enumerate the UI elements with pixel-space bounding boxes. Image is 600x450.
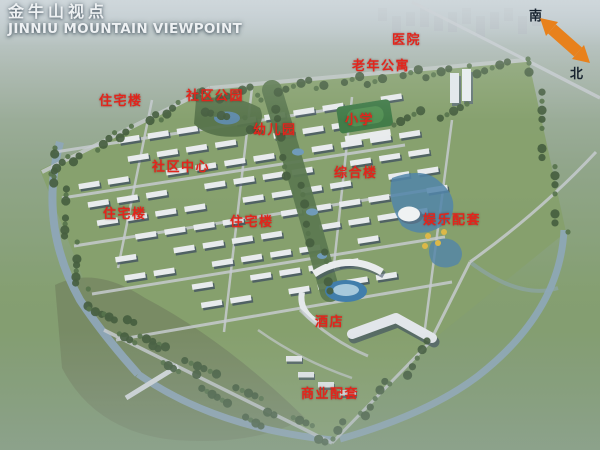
map-label: 综合楼 xyxy=(334,162,378,181)
map-label: 商业配套 xyxy=(301,383,359,402)
map-label: 酒店 xyxy=(315,311,344,330)
map-label: 社区中心 xyxy=(152,156,210,175)
map-label: 医院 xyxy=(392,29,421,48)
aerial-photo xyxy=(0,0,600,450)
compass-south-label: 南 xyxy=(529,8,542,24)
map-label: 幼儿园 xyxy=(253,119,297,138)
title-chinese: 金牛山视点 xyxy=(8,3,242,22)
compass-north-label: 北 xyxy=(570,67,583,82)
viewpoint-title: 金牛山视点 JINNIU MOUNTAIN VIEWPOINT xyxy=(8,3,242,38)
compass: 南 北 xyxy=(528,0,600,82)
map-label: 社区公园 xyxy=(186,85,244,104)
map-label: 老年公寓 xyxy=(352,55,410,74)
compass-arrow-icon: 南 北 xyxy=(528,0,600,82)
map-label: 小学 xyxy=(345,109,374,128)
map-label: 住宅楼 xyxy=(99,90,143,109)
map-label: 住宅楼 xyxy=(230,211,274,230)
map-label: 住宅楼 xyxy=(103,203,147,222)
title-english: JINNIU MOUNTAIN VIEWPOINT xyxy=(8,22,242,38)
aerial-rendering: 金牛山视点 JINNIU MOUNTAIN VIEWPOINT 南 北 医院老年… xyxy=(0,0,600,450)
map-label: 娱乐配套 xyxy=(423,209,481,228)
